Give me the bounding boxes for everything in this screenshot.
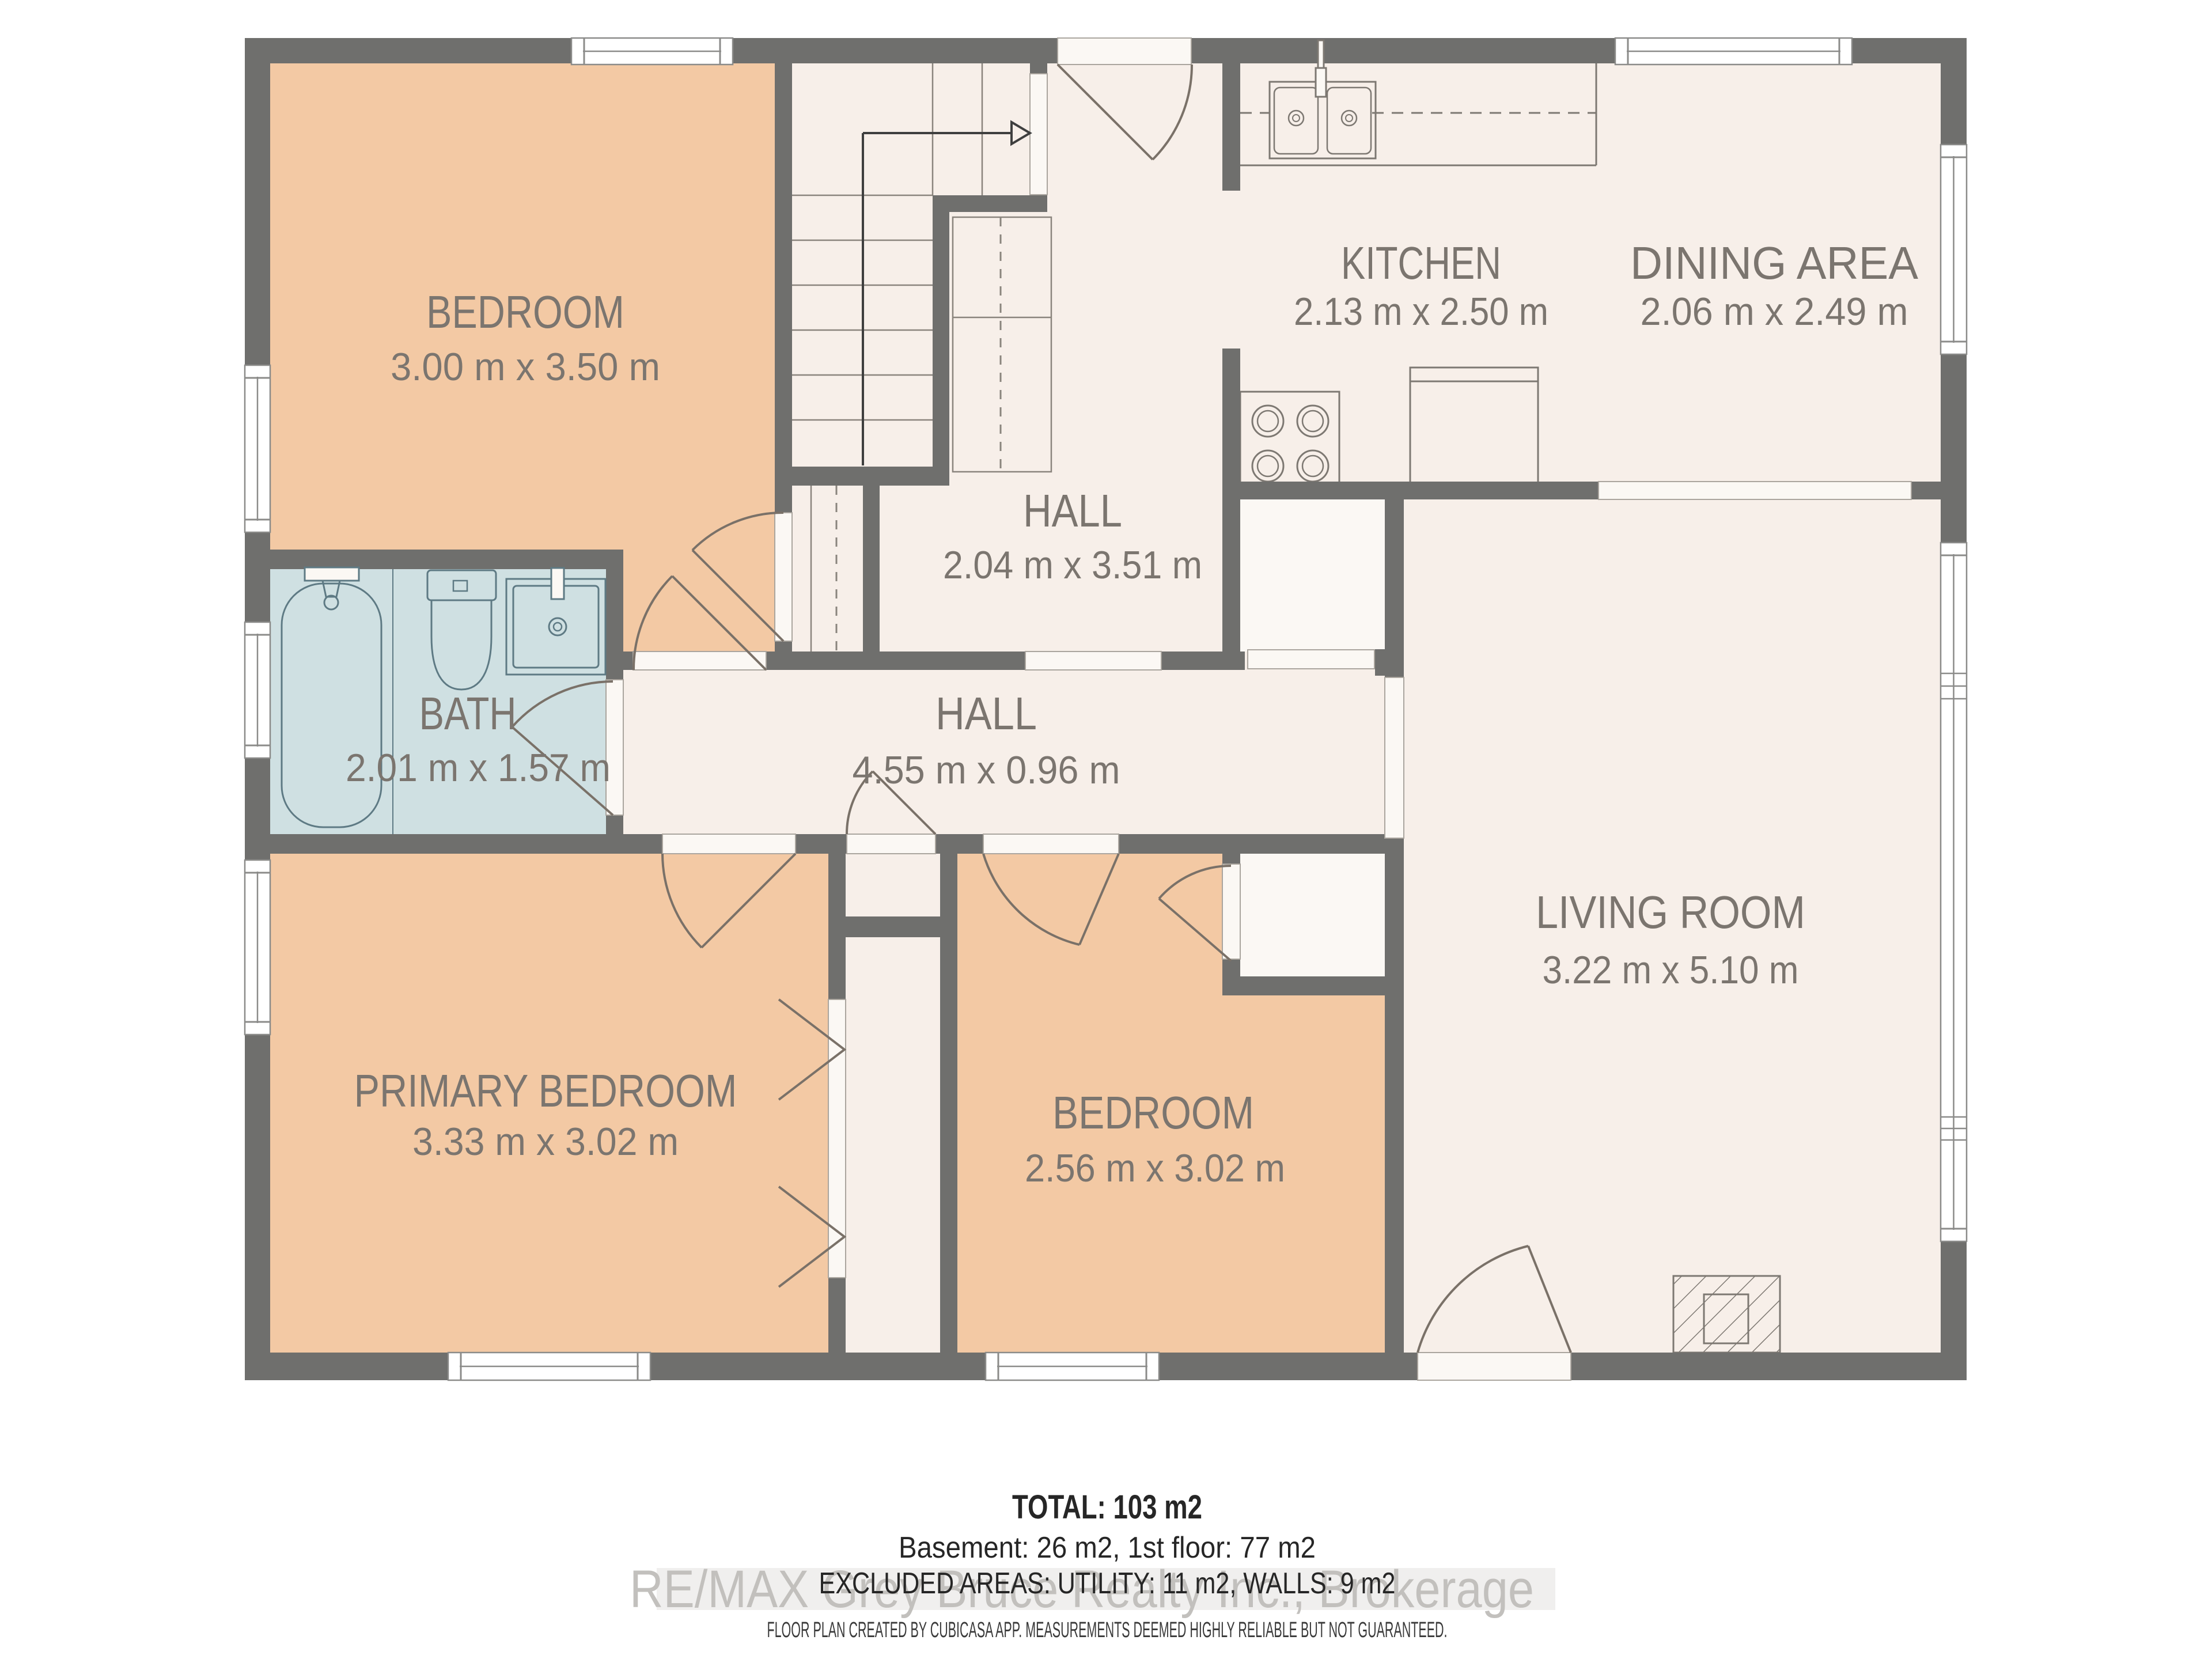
svg-text:TOTAL: 103 m2: TOTAL: 103 m2 — [1012, 1488, 1202, 1526]
svg-text:Basement: 26 m2, 1st floor: 77: Basement: 26 m2, 1st floor: 77 m2 — [899, 1531, 1316, 1565]
svg-text:2.13 m x 2.50 m: 2.13 m x 2.50 m — [1294, 290, 1548, 334]
svg-text:LIVING ROOM: LIVING ROOM — [1536, 887, 1805, 938]
svg-text:BEDROOM: BEDROOM — [426, 286, 624, 338]
svg-text:KITCHEN: KITCHEN — [1341, 237, 1501, 289]
svg-text:PRIMARY BEDROOM: PRIMARY BEDROOM — [354, 1065, 737, 1116]
svg-text:BEDROOM: BEDROOM — [1052, 1087, 1254, 1138]
svg-text:BATH: BATH — [419, 688, 517, 739]
svg-text:3.22 m x 5.10 m: 3.22 m x 5.10 m — [1543, 948, 1799, 992]
svg-text:2.01 m x 1.57 m: 2.01 m x 1.57 m — [346, 746, 611, 790]
svg-text:HALL: HALL — [1023, 485, 1122, 536]
svg-text:DINING AREA: DINING AREA — [1630, 237, 1919, 289]
svg-text:2.56 m x 3.02 m: 2.56 m x 3.02 m — [1025, 1146, 1285, 1190]
svg-text:HALL: HALL — [935, 688, 1037, 739]
svg-text:4.55 m x 0.96 m: 4.55 m x 0.96 m — [853, 748, 1120, 792]
svg-text:2.04 m x 3.51 m: 2.04 m x 3.51 m — [943, 543, 1202, 587]
svg-text:EXCLUDED AREAS: UTILITY: 11 m2: EXCLUDED AREAS: UTILITY: 11 m2, WALLS: 9… — [819, 1567, 1396, 1600]
svg-text:FLOOR PLAN CREATED BY CUBICASA: FLOOR PLAN CREATED BY CUBICASA APP. MEAS… — [767, 1618, 1448, 1642]
svg-text:3.00 m x 3.50 m: 3.00 m x 3.50 m — [391, 345, 660, 389]
svg-text:3.33 m x 3.02 m: 3.33 m x 3.02 m — [412, 1120, 679, 1164]
svg-text:2.06 m x 2.49 m: 2.06 m x 2.49 m — [1641, 290, 1908, 334]
